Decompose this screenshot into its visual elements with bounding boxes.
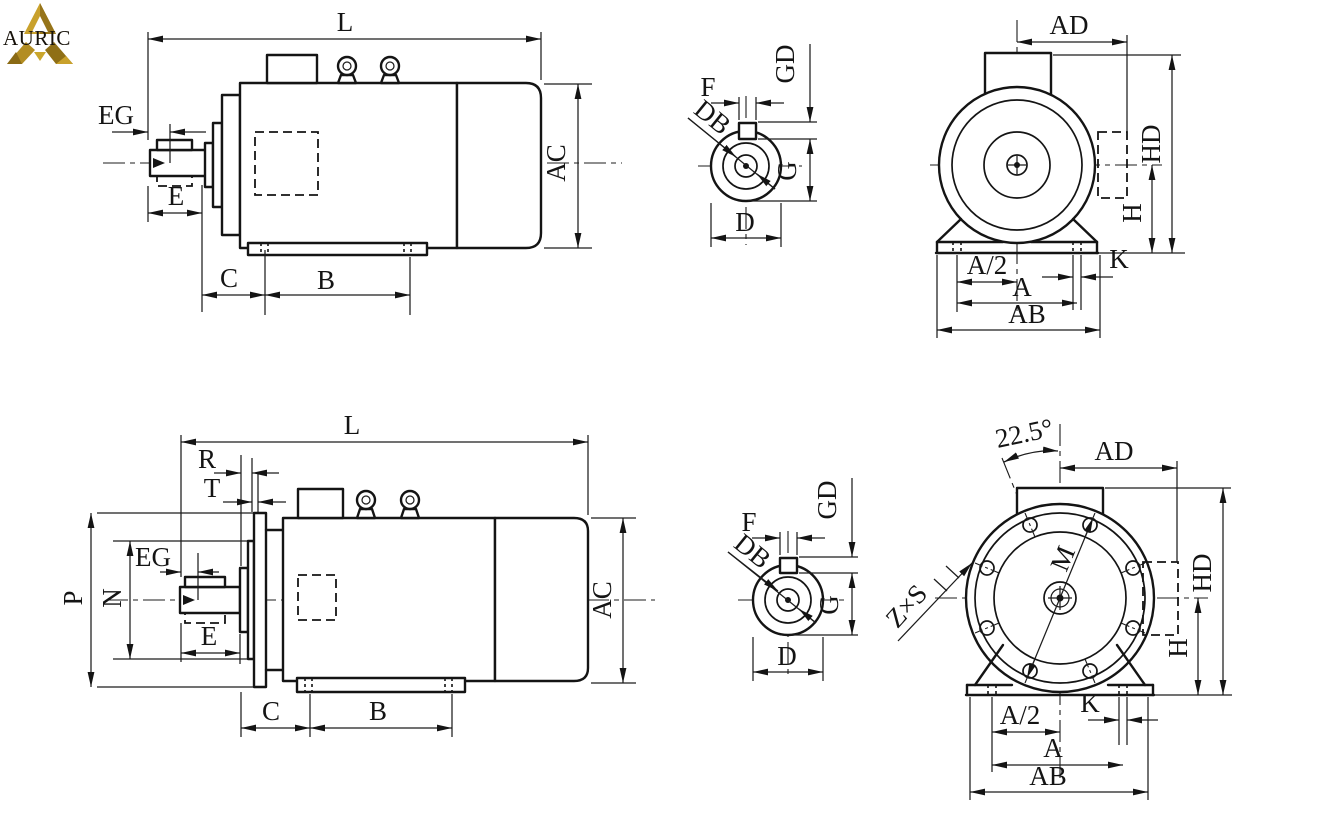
dim-label-G: G [814,595,844,615]
view-shaft-end-top: F DB GD G D [688,44,817,247]
dim-label-DB: DB [729,528,777,575]
keyway [739,123,756,139]
dim-label-C: C [262,696,280,726]
logo-a-crossbar [34,52,46,61]
dim-label-L: L [337,7,354,37]
motor-dimension-drawing: AURIC L [0,0,1334,826]
dim-label-G: G [772,161,802,181]
dim-label-L: L [344,410,361,440]
bearing-cap-step2 [213,123,222,207]
eyebolt-ring [401,491,419,509]
center-hole [1014,162,1020,168]
dim-label-K: K [1109,244,1129,274]
dim-line-angle [1004,451,1058,462]
view-side-flange-mounted: L R T EG E P N C B [58,410,655,737]
dim-label-R: R [198,444,216,474]
eyebolt-ring [381,57,399,75]
eyebolt-ring [357,491,375,509]
dim-label-D: D [735,207,755,237]
dim-label-AD: AD [1050,10,1089,40]
dim-label-E: E [201,621,218,651]
dim-label-DB: DB [689,94,737,141]
view-front-flange-mounted: 22.5° AD HD H M Z×S A/2 K A AB [880,412,1232,800]
dim-label-A2: A/2 [967,250,1008,280]
dim-label-A: A [1043,733,1063,763]
dim-label-D: D [777,641,797,671]
dim-label-EG: EG [135,542,171,572]
dim-label-P: P [58,590,88,605]
eyebolt-base [401,509,419,518]
dim-label-B: B [369,696,387,726]
fan-cover [457,83,541,248]
dim-label-C: C [220,263,238,293]
dim-label-HD: HD [1136,125,1166,164]
dim-label-H: H [1117,203,1147,223]
terminal-box [298,489,343,518]
foot-rail [297,678,465,692]
shaft-key [157,140,192,150]
dim-label-GD: GD [770,45,800,84]
dim-label-A2: A/2 [1000,700,1041,730]
brand-logo-text: AURIC [3,26,71,50]
motor-body [240,83,457,248]
dim-label-EG: EG [98,100,134,130]
dim-label-GD: GD [812,481,842,520]
dim-label-AB: AB [1029,761,1067,791]
dim-label-N: N [97,588,127,608]
fan-cover [495,518,588,681]
dim-label-K: K [1080,688,1100,718]
dim-label-A: A [1012,272,1032,302]
view-side-foot-mounted: L EG E C B AC [98,7,622,315]
foot-gusset [1073,219,1097,242]
view-shaft-end-bottom: F DB GD G D [728,478,858,681]
terminal-box [267,55,317,83]
foot-rail [248,243,427,255]
dim-label-H: H [1163,638,1193,658]
brand-logo: AURIC [3,3,73,64]
keyway [780,558,797,573]
end-bell [222,95,240,235]
motor-body [283,518,495,681]
dim-label-AD: AD [1095,436,1134,466]
eyebolt-base [357,509,375,518]
dim-label-E: E [168,181,185,211]
drawing-svg: AURIC L [0,0,1334,826]
view-front-foot-mounted: AD HD H A/2 K A AB [930,10,1185,338]
eyebolt-ring [338,57,356,75]
dim-label-AC: AC [541,144,571,182]
dim-label-AC: AC [587,581,617,619]
shaft-key [185,577,225,587]
dim-label-AB: AB [1008,299,1046,329]
dim-label-T: T [204,473,221,503]
dim-label-HD: HD [1187,554,1217,593]
foot-gusset [937,219,961,242]
dim-label-B: B [317,265,335,295]
dim-label-ZxS: Z×S [880,579,934,634]
dim-label-angle: 22.5° [993,412,1056,453]
flange-plate [254,513,266,687]
